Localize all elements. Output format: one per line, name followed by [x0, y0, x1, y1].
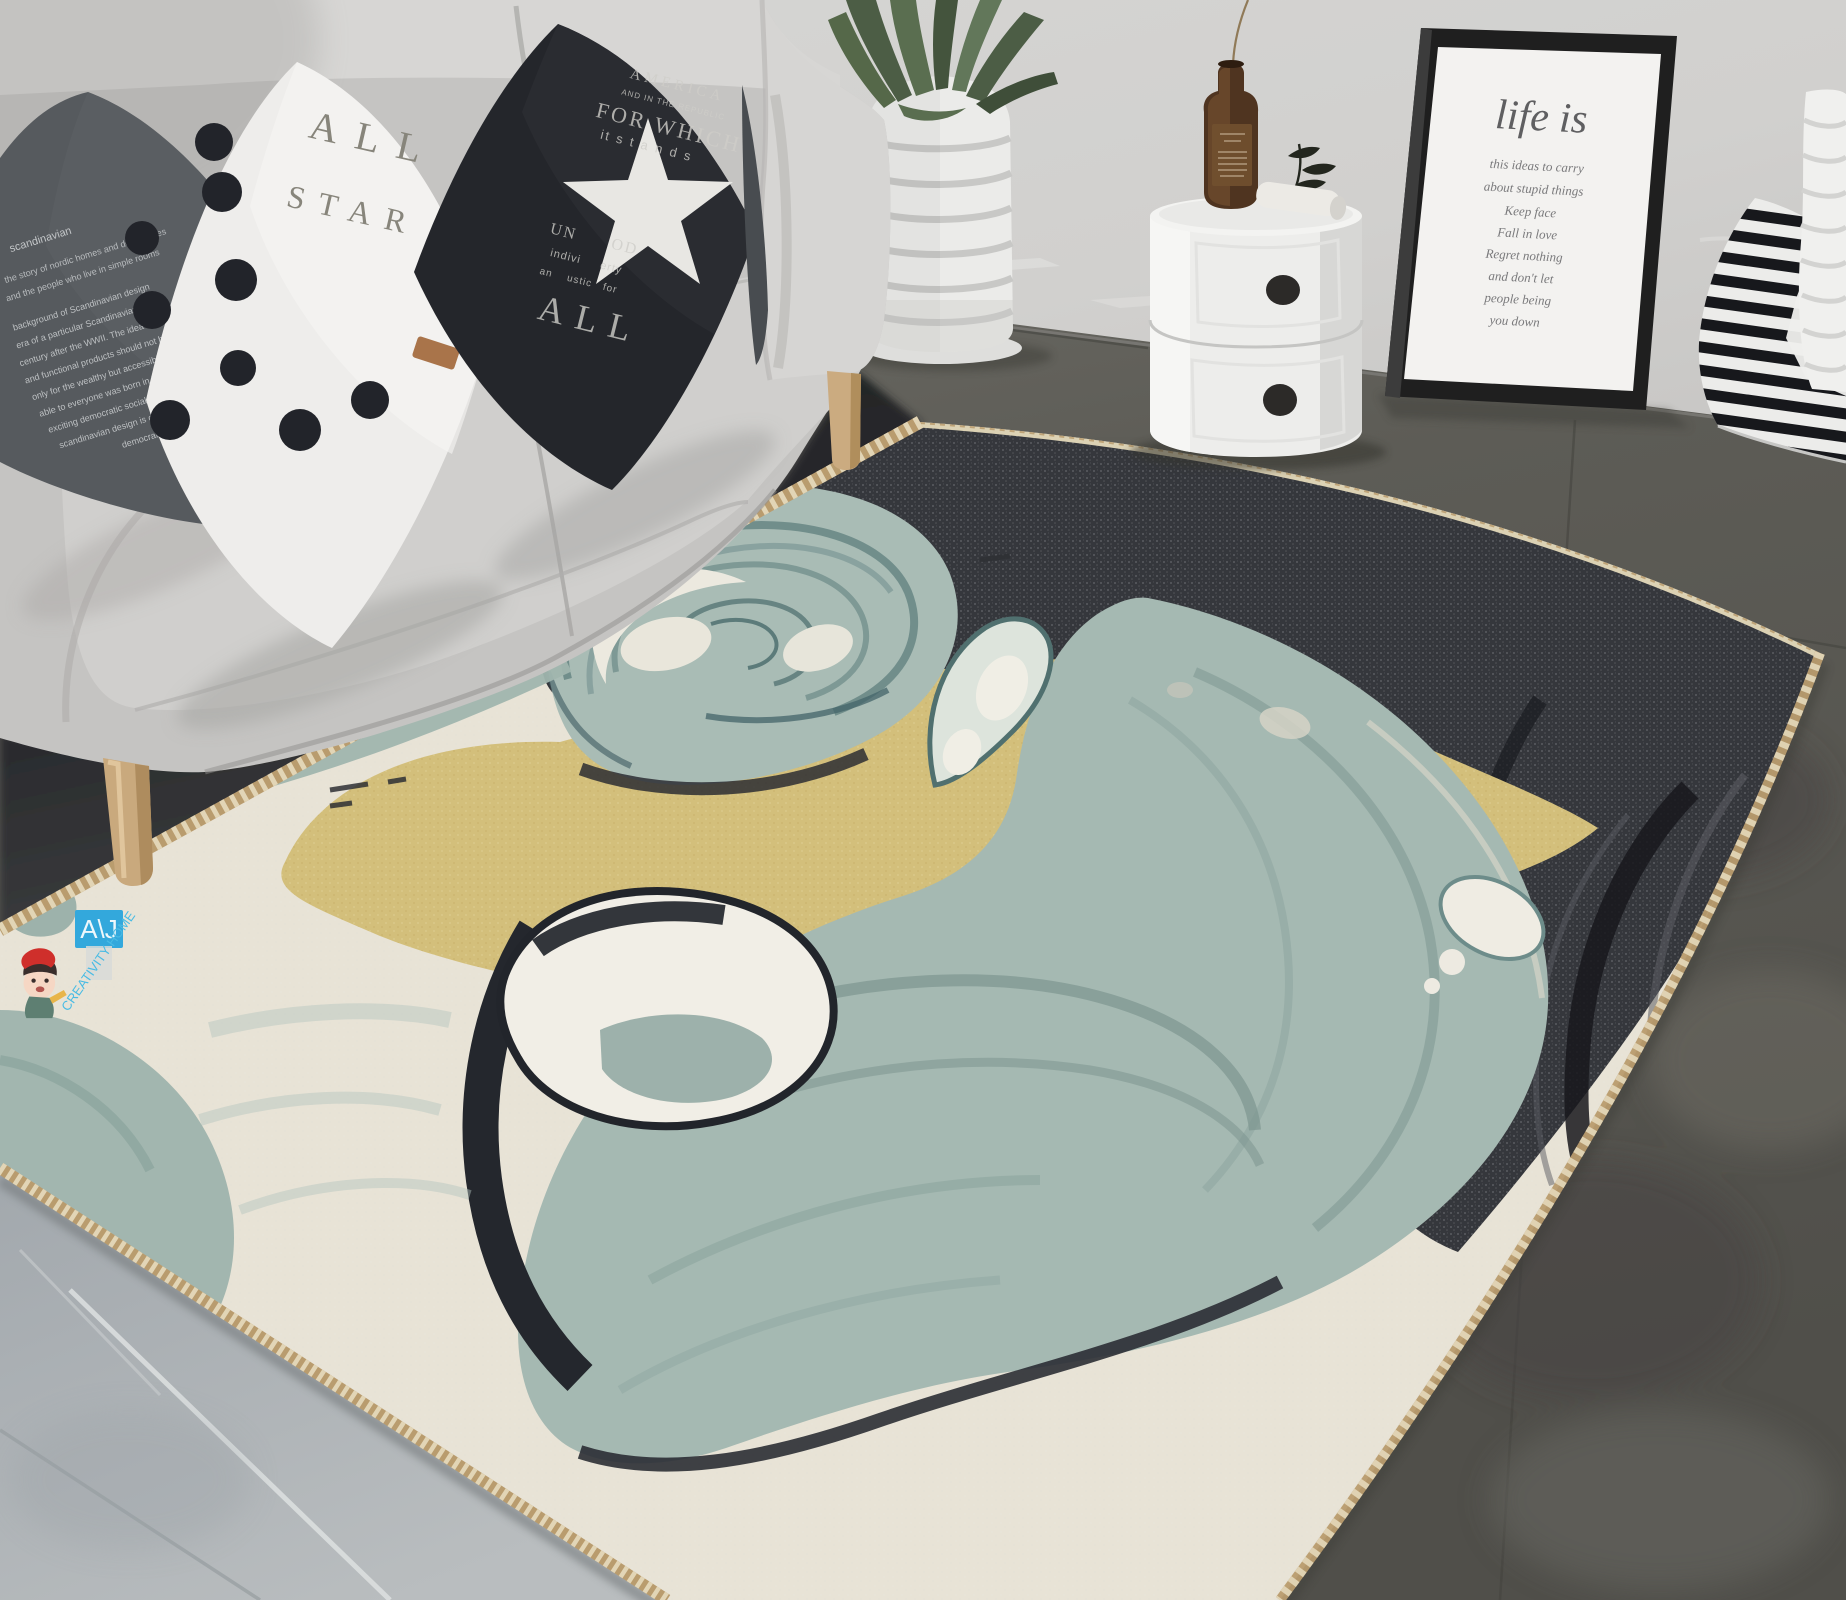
- svg-text:Fall in love: Fall in love: [1496, 224, 1558, 242]
- svg-text:life is: life is: [1494, 92, 1588, 143]
- svg-text:Keep face: Keep face: [1503, 203, 1557, 221]
- svg-text:you down: you down: [1487, 312, 1540, 330]
